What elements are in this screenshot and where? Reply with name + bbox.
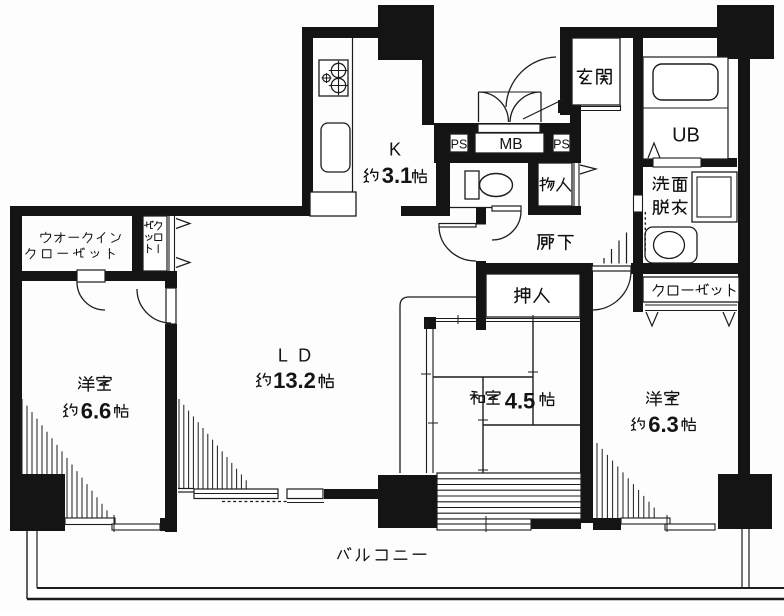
svg-text:3.1: 3.1 (382, 163, 413, 188)
svg-text:K: K (389, 140, 401, 160)
svg-text:6.6: 6.6 (81, 399, 112, 424)
svg-text:UB: UB (672, 125, 700, 147)
svg-text:13.2: 13.2 (273, 368, 316, 393)
svg-text:MB: MB (499, 136, 522, 153)
svg-text:PS: PS (553, 138, 570, 152)
svg-text:L D: L D (278, 346, 314, 366)
svg-text:4.5: 4.5 (505, 389, 536, 414)
svg-text:6.3: 6.3 (648, 412, 679, 437)
svg-text:PS: PS (451, 138, 468, 152)
